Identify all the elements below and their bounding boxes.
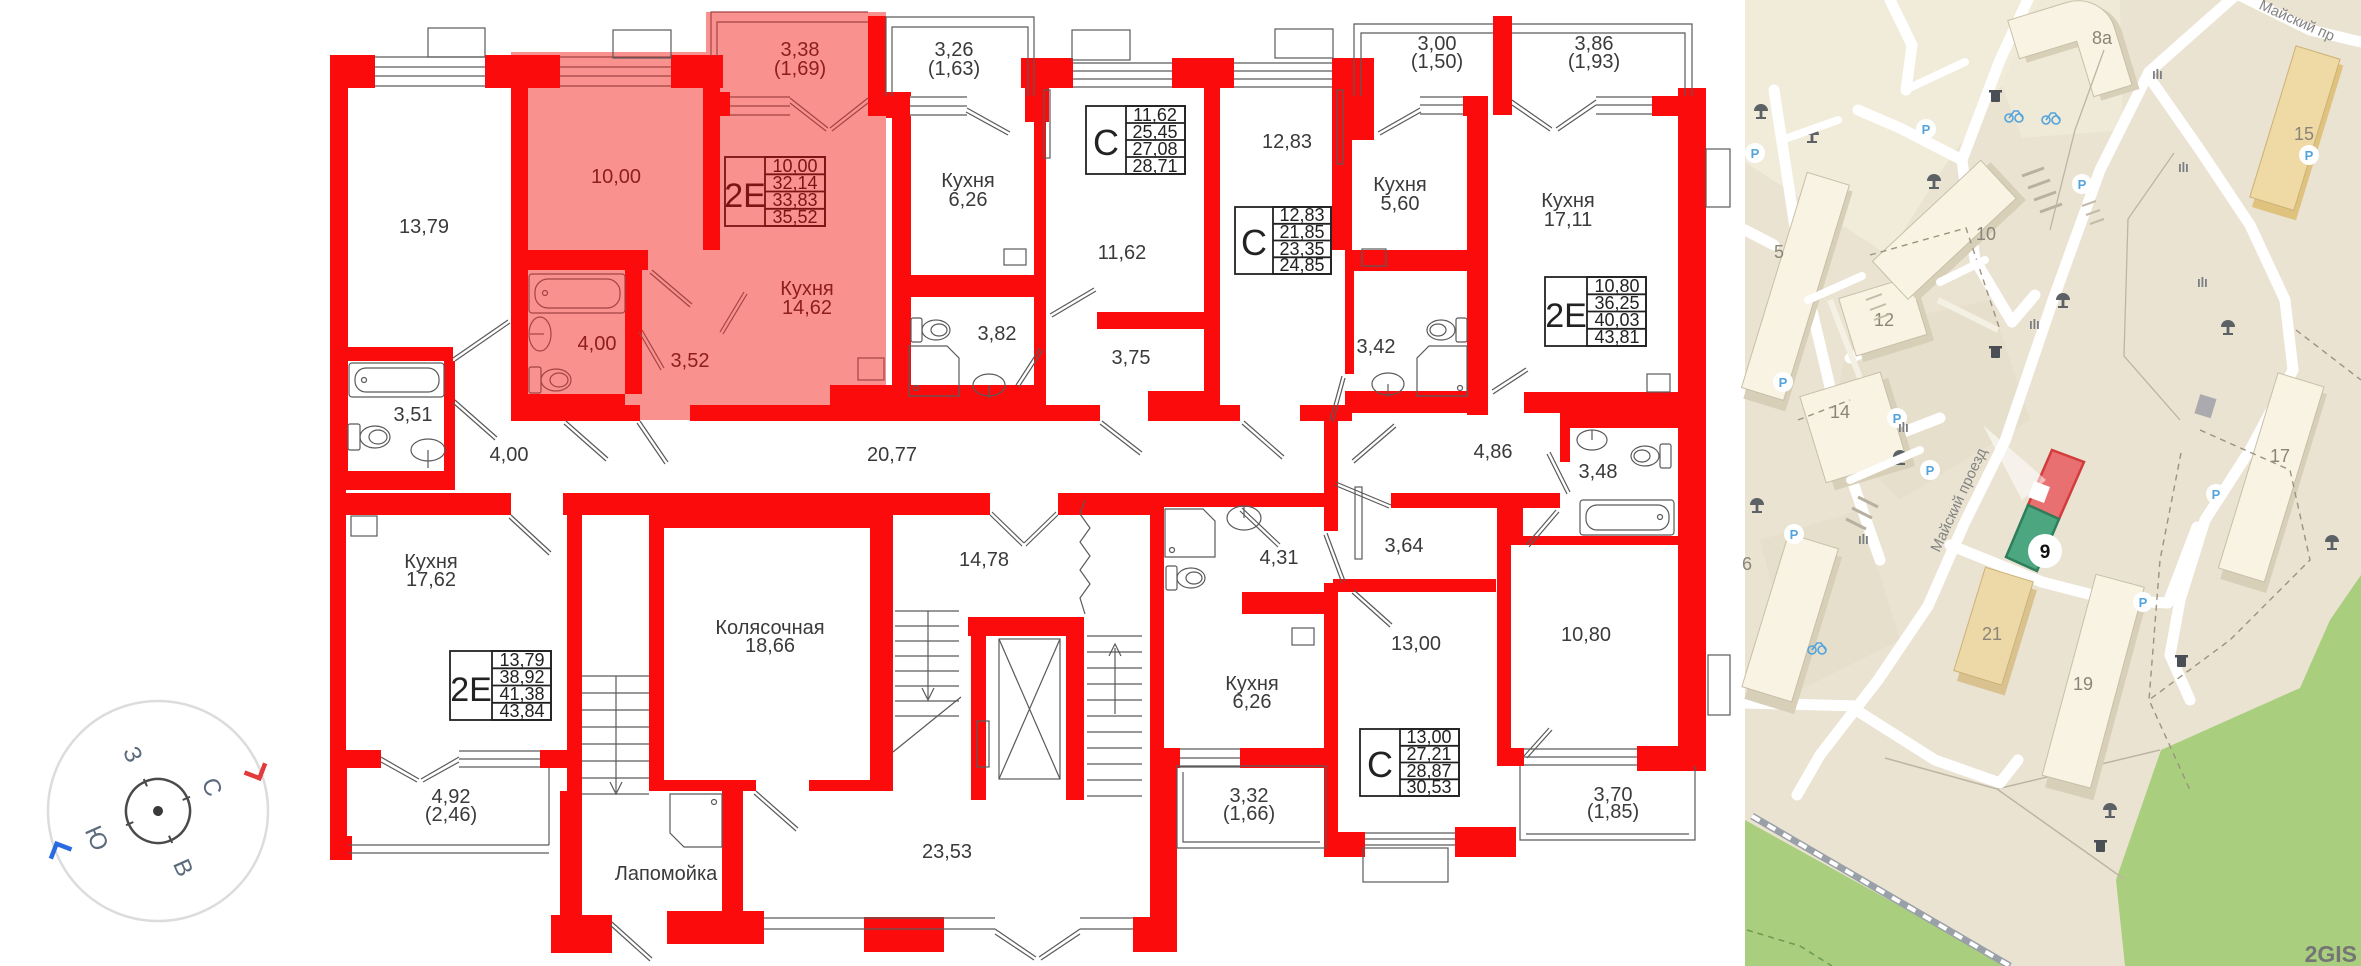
svg-text:2Е: 2Е (450, 671, 492, 709)
svg-text:2Е: 2Е (724, 177, 766, 215)
svg-text:6,26: 6,26 (949, 189, 988, 211)
svg-text:24,85: 24,85 (1279, 255, 1324, 275)
svg-text:P: P (2212, 487, 2221, 502)
svg-text:(1,50): (1,50) (1411, 51, 1463, 73)
svg-text:10,00: 10,00 (591, 166, 641, 188)
svg-text:(1,66): (1,66) (1223, 803, 1275, 825)
svg-text:10: 10 (1976, 224, 1996, 244)
svg-text:3,42: 3,42 (1357, 336, 1396, 358)
svg-text:5: 5 (1774, 242, 1784, 262)
svg-text:4,00: 4,00 (578, 333, 617, 355)
svg-text:3,82: 3,82 (978, 323, 1017, 345)
svg-text:(1,93): (1,93) (1568, 51, 1620, 73)
svg-text:14: 14 (1830, 402, 1850, 422)
svg-text:20,77: 20,77 (867, 444, 917, 466)
svg-text:4,86: 4,86 (1474, 441, 1513, 463)
svg-text:(2,46): (2,46) (425, 804, 477, 826)
svg-text:2Е: 2Е (1545, 297, 1587, 335)
svg-text:(1,63): (1,63) (928, 58, 980, 80)
svg-text:6,26: 6,26 (1233, 691, 1272, 713)
svg-text:28,71: 28,71 (1132, 156, 1177, 176)
svg-text:5,60: 5,60 (1381, 193, 1420, 215)
svg-text:13,00: 13,00 (1391, 633, 1441, 655)
svg-text:С: С (1367, 744, 1393, 785)
svg-text:43,84: 43,84 (499, 701, 544, 721)
svg-text:17,62: 17,62 (406, 569, 456, 591)
svg-text:43,81: 43,81 (1594, 327, 1639, 347)
svg-text:10,80: 10,80 (1561, 624, 1611, 646)
svg-text:12,83: 12,83 (1262, 131, 1312, 153)
svg-text:11,62: 11,62 (1098, 242, 1147, 264)
svg-text:13,79: 13,79 (399, 216, 449, 238)
svg-text:(1,85): (1,85) (1587, 801, 1639, 823)
svg-text:23,53: 23,53 (922, 841, 972, 863)
svg-text:18,66: 18,66 (745, 635, 795, 657)
svg-text:3,75: 3,75 (1112, 347, 1151, 369)
svg-text:P: P (1790, 527, 1799, 542)
svg-text:3,52: 3,52 (671, 350, 710, 372)
svg-text:9: 9 (2040, 542, 2051, 563)
svg-text:3,64: 3,64 (1385, 535, 1424, 557)
svg-text:Лапомойка: Лапомойка (615, 863, 718, 885)
svg-text:17,11: 17,11 (1544, 209, 1593, 231)
svg-text:P: P (1779, 375, 1788, 390)
svg-text:P: P (1926, 463, 1935, 478)
svg-text:14,78: 14,78 (959, 549, 1009, 571)
svg-text:4,31: 4,31 (1260, 547, 1299, 569)
svg-text:С: С (1093, 122, 1119, 163)
svg-text:P: P (1922, 122, 1931, 137)
svg-text:21: 21 (1982, 624, 2002, 644)
svg-text:15: 15 (2294, 124, 2314, 144)
svg-text:С: С (1241, 222, 1267, 263)
svg-text:8a: 8a (2092, 28, 2113, 48)
svg-text:3,51: 3,51 (394, 404, 433, 426)
svg-text:P: P (1751, 146, 1760, 161)
svg-text:P: P (1893, 411, 1902, 426)
svg-text:30,53: 30,53 (1406, 777, 1451, 797)
svg-text:P: P (2139, 595, 2148, 610)
svg-text:19: 19 (2073, 674, 2093, 694)
svg-text:6: 6 (1742, 554, 1752, 574)
svg-text:P: P (2305, 148, 2314, 163)
svg-text:(1,69): (1,69) (774, 58, 826, 80)
svg-text:35,52: 35,52 (772, 207, 817, 227)
svg-text:12: 12 (1874, 310, 1894, 330)
svg-text:2GIS: 2GIS (2305, 941, 2357, 966)
svg-text:4,00: 4,00 (490, 444, 529, 466)
svg-text:3,48: 3,48 (1579, 461, 1618, 483)
svg-text:P: P (2078, 177, 2087, 192)
svg-text:14,62: 14,62 (782, 297, 832, 319)
